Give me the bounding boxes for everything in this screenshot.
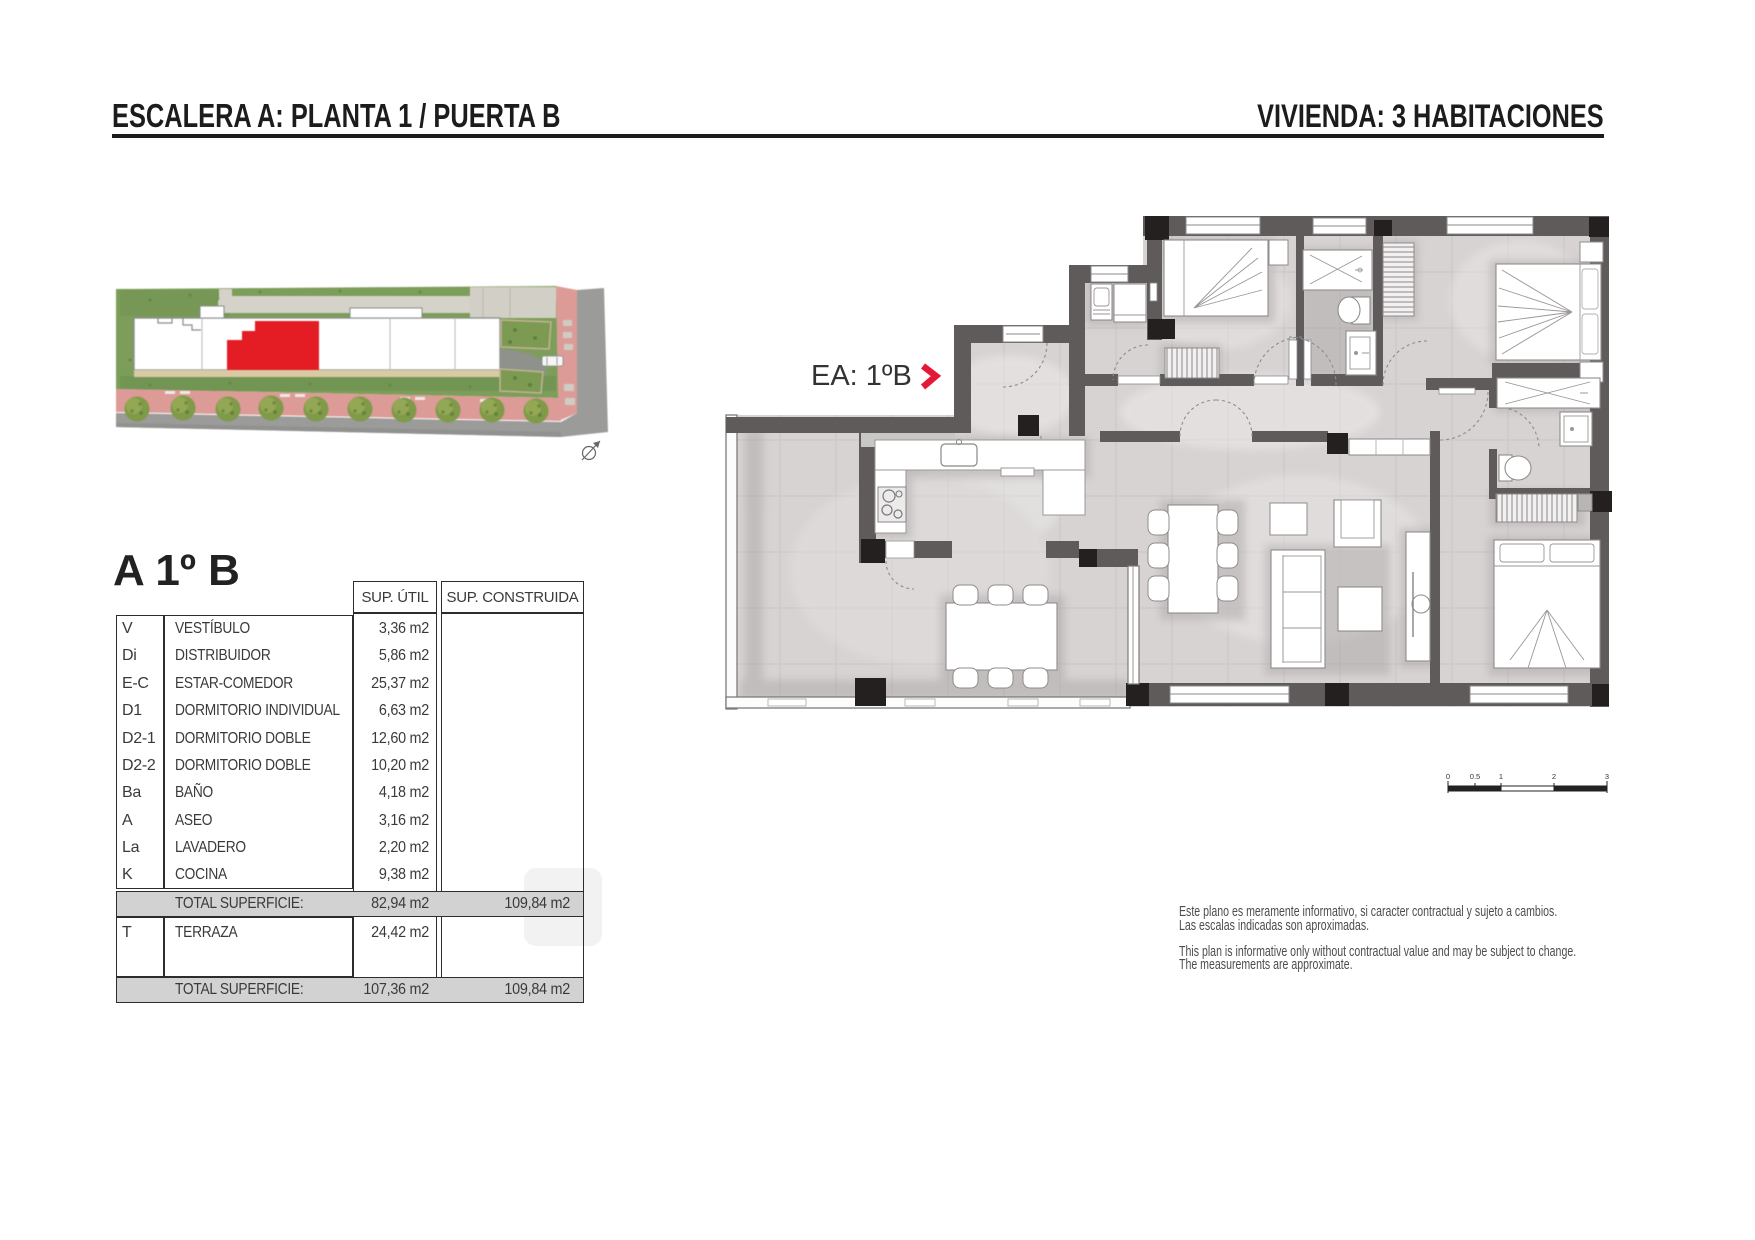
svg-text:1: 1 <box>1499 772 1503 781</box>
svg-text:2: 2 <box>1552 772 1556 781</box>
svg-text:3: 3 <box>1605 772 1609 781</box>
svg-text:0.5: 0.5 <box>1470 772 1480 781</box>
svg-text:0: 0 <box>1446 772 1450 781</box>
